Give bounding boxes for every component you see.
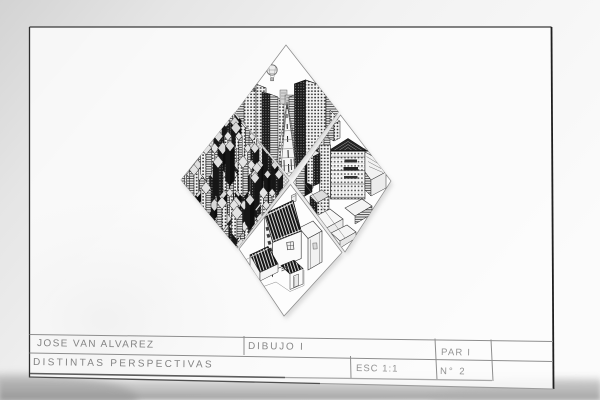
svg-text:DIBUJO I: DIBUJO I [248, 341, 305, 353]
svg-text:PAR I: PAR I [441, 347, 471, 358]
svg-text:ESC 1:1: ESC 1:1 [356, 363, 399, 375]
svg-text:N° 2: N° 2 [440, 366, 467, 377]
svg-text:JOSE VAN ALVAREZ: JOSE VAN ALVAREZ [37, 338, 155, 351]
